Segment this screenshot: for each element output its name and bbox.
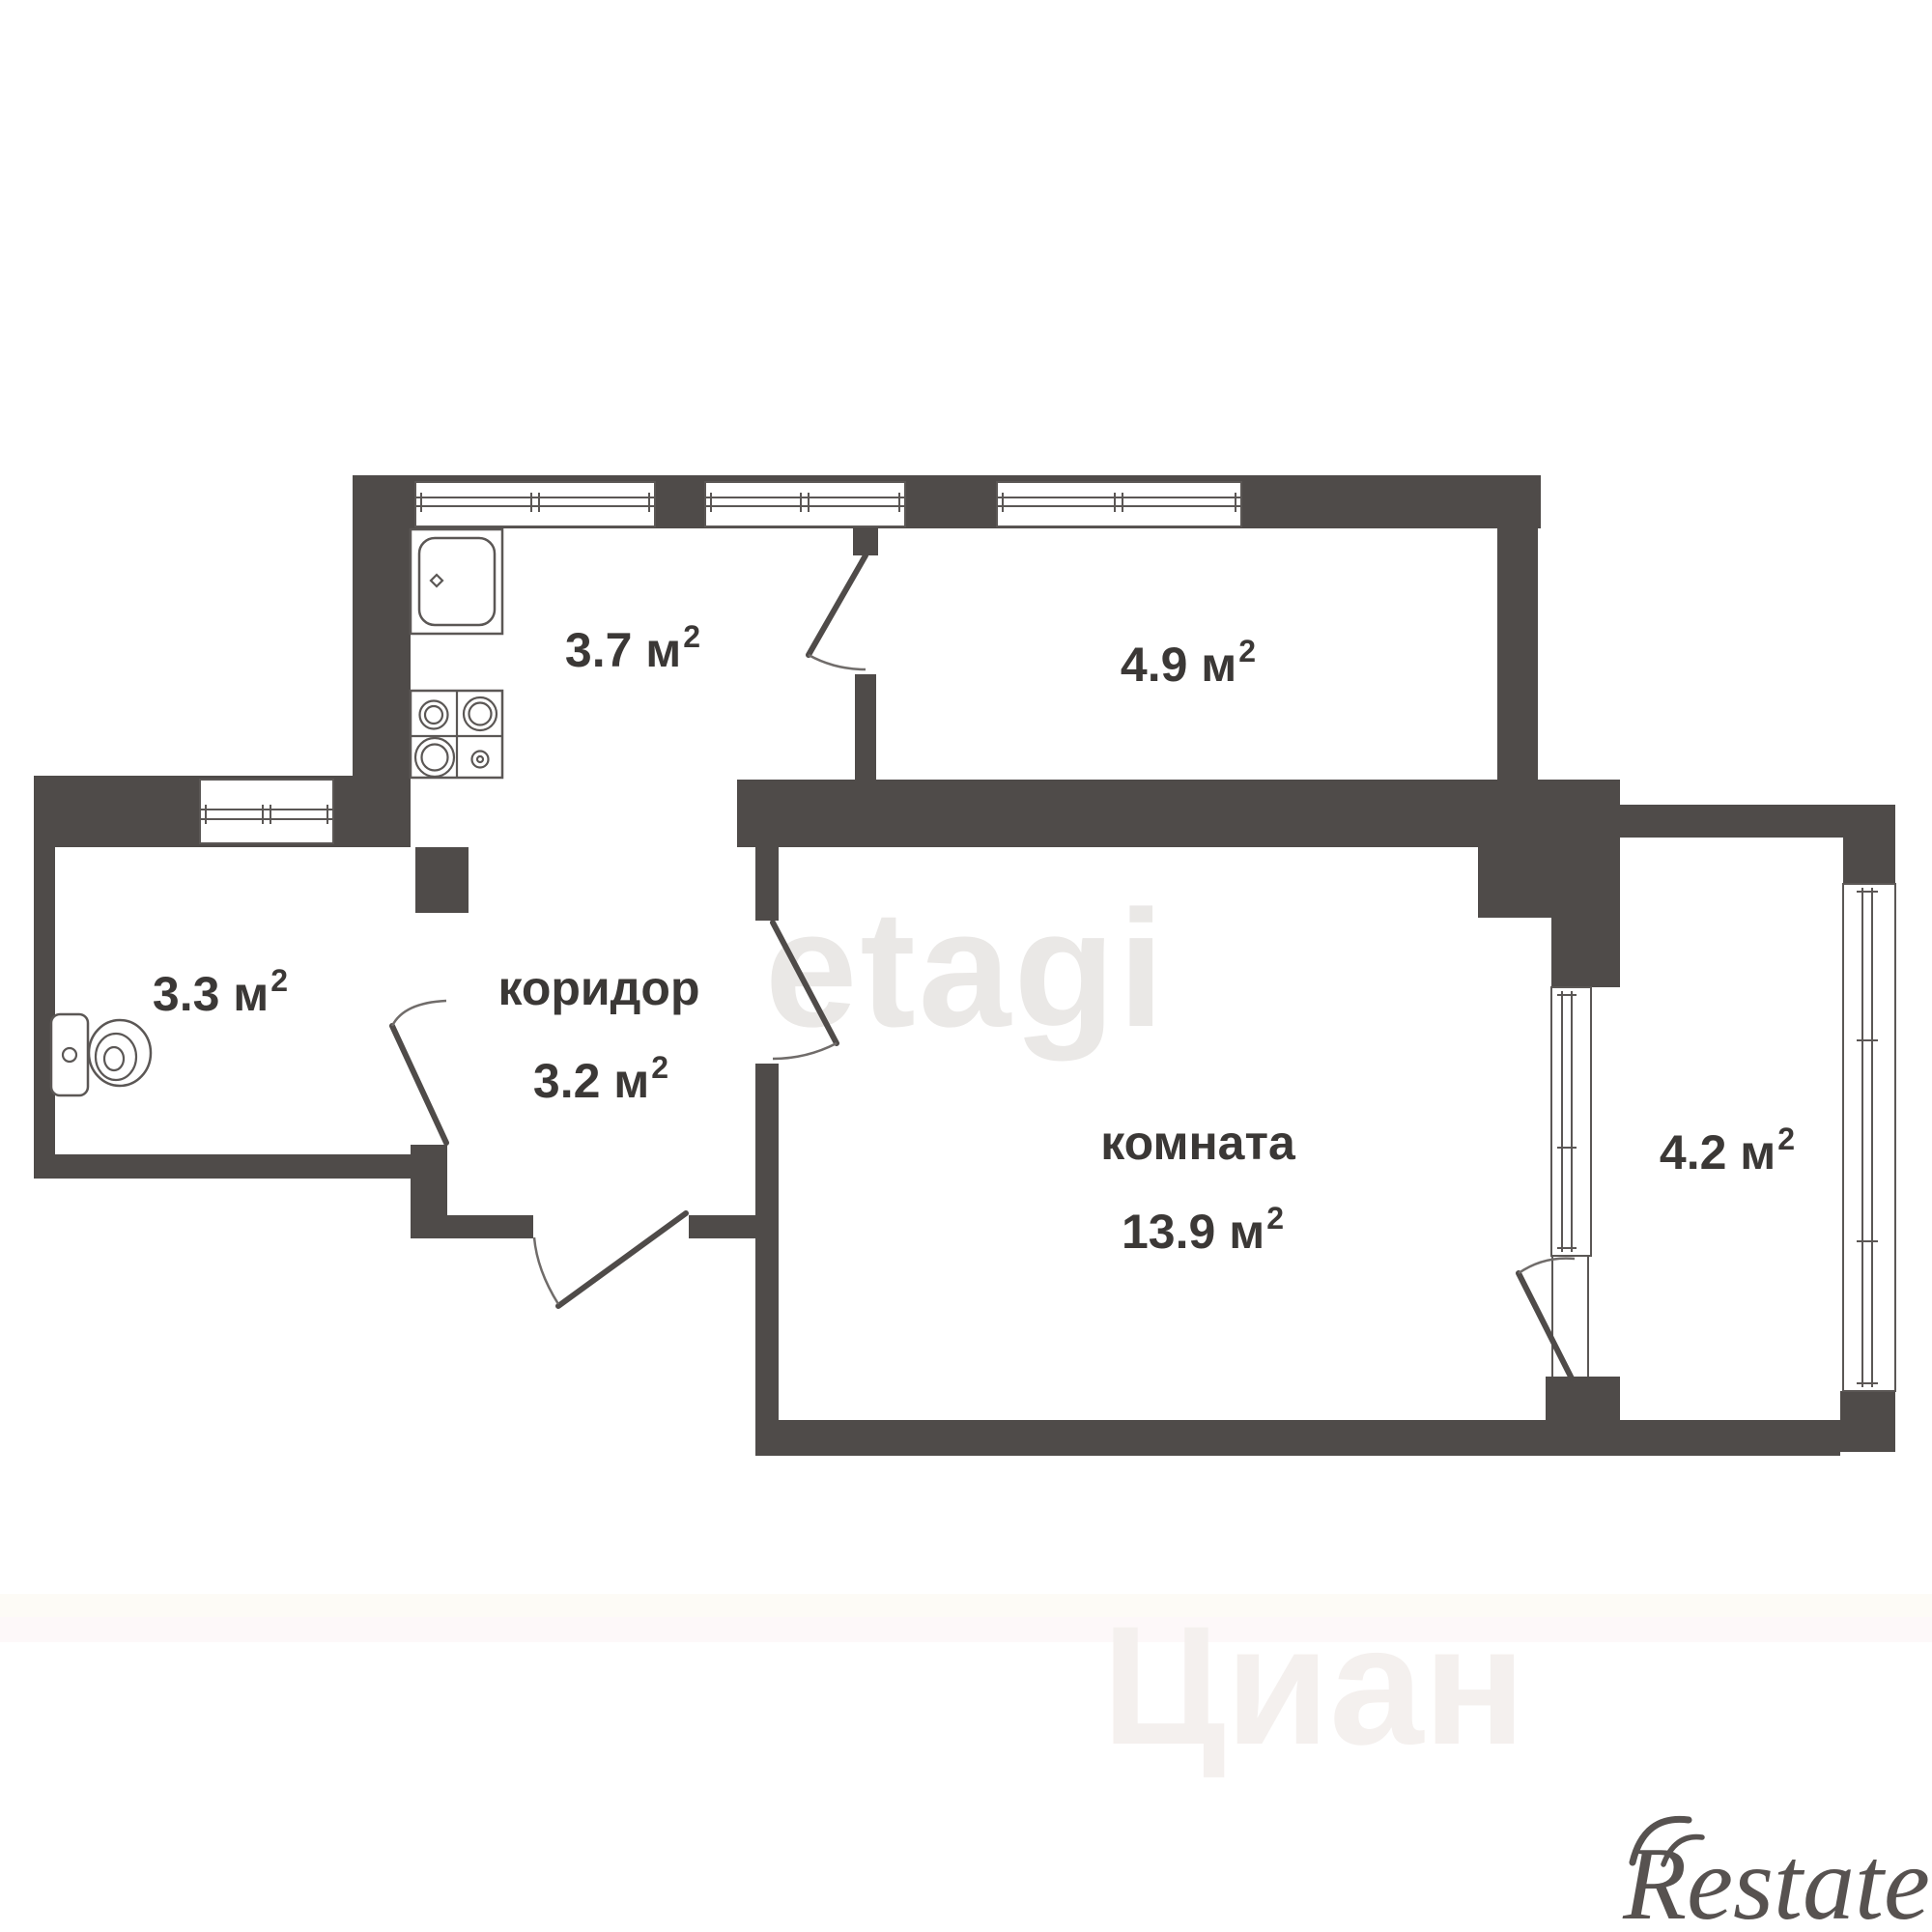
- window: [415, 482, 655, 526]
- wall-segment: [1840, 1391, 1895, 1452]
- room-label-bathroom: 3.3 м2: [153, 963, 288, 1021]
- window: [200, 780, 333, 843]
- wall-segment: [755, 842, 779, 921]
- wall-segment: [1551, 847, 1620, 987]
- wall-segment: [1497, 528, 1538, 780]
- scan-band: [0, 1617, 1932, 1642]
- room-label-main-room: 13.9 м2: [1122, 1201, 1284, 1259]
- wall-segment: [440, 1215, 533, 1238]
- restate-logo: Restate: [1622, 1819, 1930, 1932]
- room-name-main-room: комната: [1100, 1116, 1296, 1170]
- sink-icon: [411, 529, 502, 634]
- wall-segment: [1843, 805, 1895, 884]
- wall-segment: [755, 1064, 779, 1456]
- room-label-room49: 4.9 м2: [1121, 634, 1256, 692]
- room-label-balcony: 4.2 м2: [1660, 1122, 1795, 1179]
- wall-segment: [34, 1154, 447, 1179]
- wall-segment: [1546, 1377, 1620, 1420]
- stove-icon: [411, 691, 502, 778]
- floor-plan-page: etagi Циан: [0, 0, 1932, 1932]
- wall-segment: [1478, 847, 1551, 918]
- watermark-etagi: etagi: [765, 876, 1167, 1062]
- window: [705, 482, 905, 526]
- wall-segment: [853, 528, 878, 555]
- watermark-cian: Циан: [1102, 1592, 1525, 1780]
- window: [997, 482, 1241, 526]
- wall-segment: [353, 528, 411, 776]
- room-name-corridor: коридор: [497, 961, 699, 1015]
- wall-segment: [1620, 805, 1845, 838]
- logo-text: Restate: [1622, 1827, 1930, 1932]
- wall-segment: [415, 847, 469, 913]
- window: [1843, 884, 1895, 1391]
- floor-plan: etagi Циан: [0, 0, 1932, 1932]
- window: [1551, 987, 1591, 1256]
- scan-band: [0, 1594, 1932, 1617]
- wall-segment: [737, 780, 1620, 847]
- room-label-kitchen: 3.7 м2: [565, 619, 700, 677]
- room-label-corridor: 3.2 м2: [533, 1050, 668, 1108]
- wall-segment: [855, 674, 876, 780]
- wall-segment: [755, 1420, 1840, 1456]
- wall-segment: [34, 847, 55, 1154]
